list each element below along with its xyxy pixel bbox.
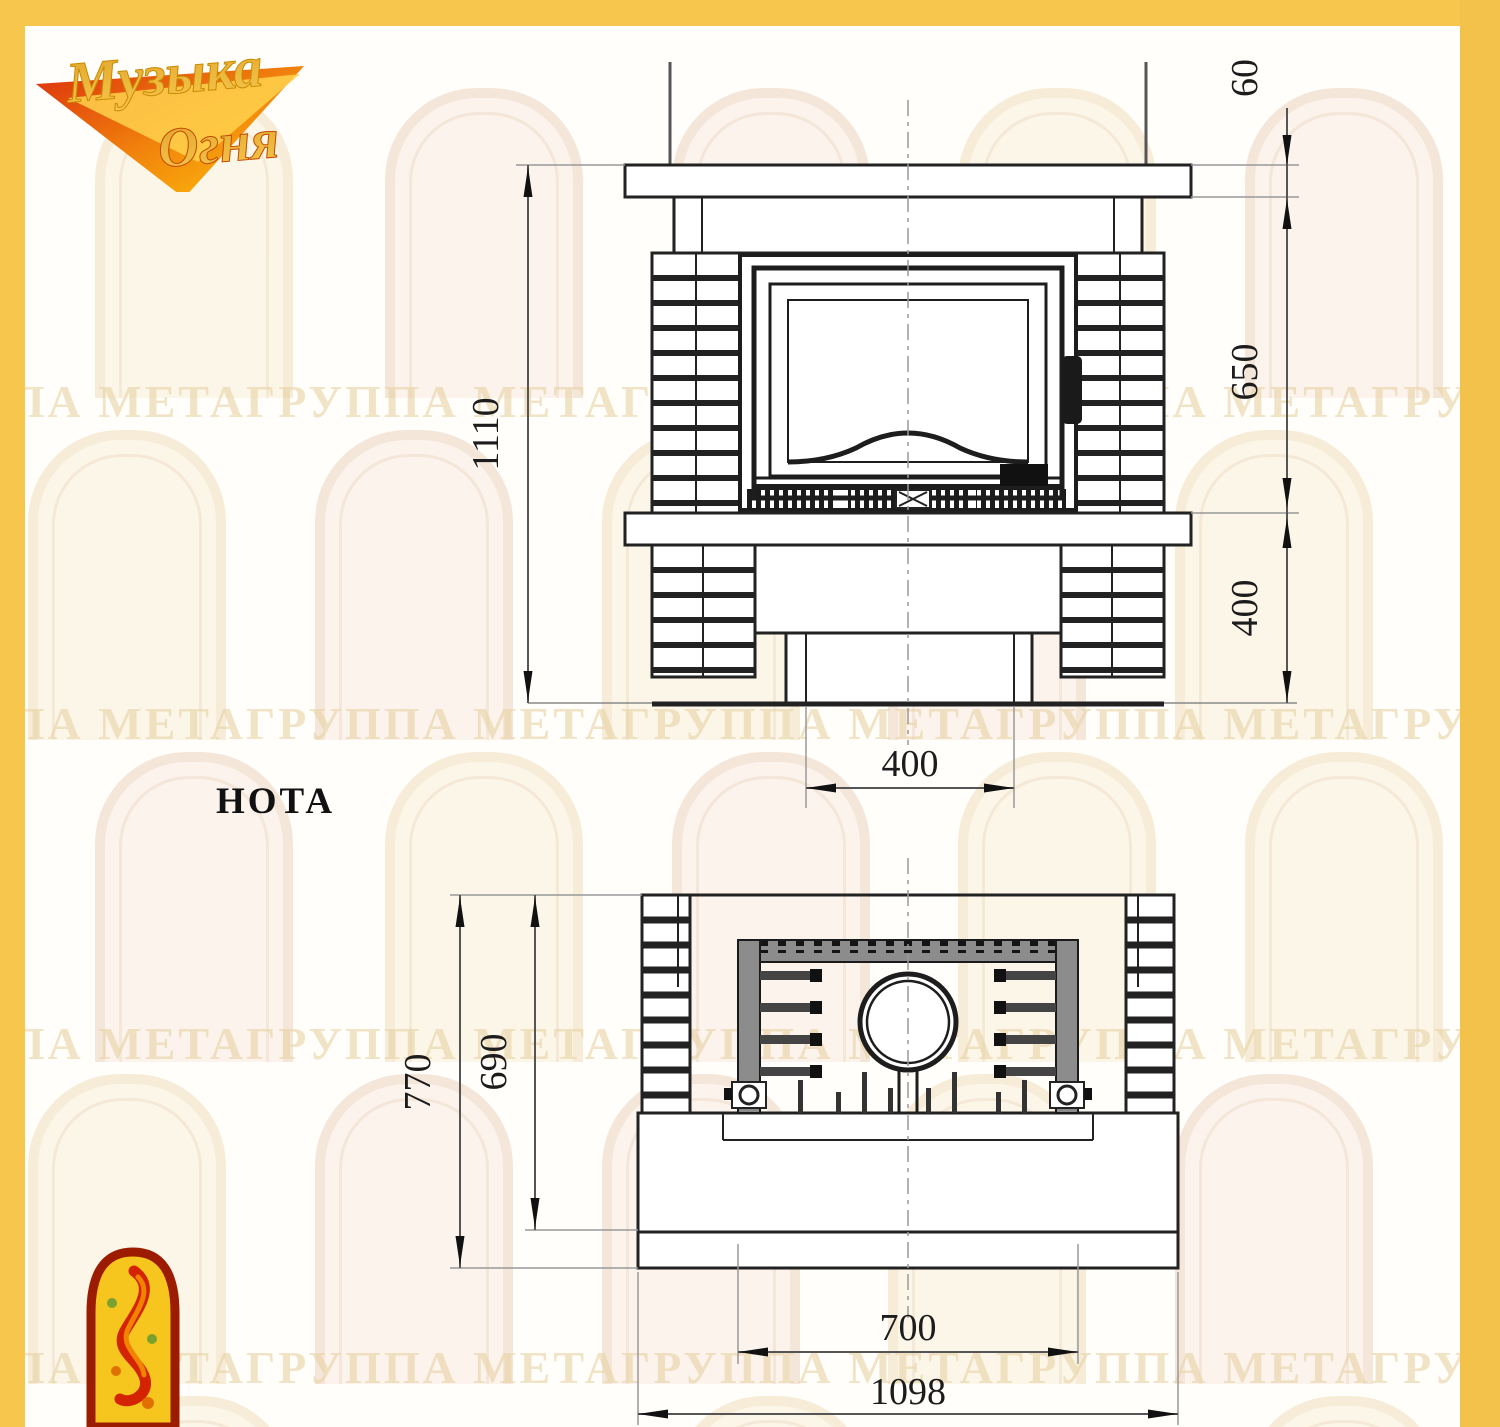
page: ППА МЕТАГРУППА МЕТАГРУППА МЕТАГРУППА МЕТ… [0, 0, 1500, 1427]
ash-lip [1000, 464, 1048, 486]
dim-opening-height: 650 [1224, 344, 1266, 401]
door-handle [1062, 356, 1082, 424]
plan-column-left [642, 895, 690, 1113]
dim-base-width: 1098 [870, 1371, 946, 1413]
firebox-insert [740, 255, 1082, 510]
corner-arch-logo [82, 1243, 184, 1427]
plan-column-right [1126, 895, 1174, 1113]
dim-pedestal-height: 400 [1224, 580, 1266, 637]
dim-mantel-thickness: 60 [1224, 59, 1266, 97]
fireplace-technical-drawing: 1110 60 650 400 400 [0, 0, 1500, 1427]
dim-hearth-width: 400 [882, 743, 939, 785]
dim-inner-depth: 690 [473, 1034, 515, 1091]
model-name-label: НОТА [216, 780, 335, 823]
dim-total-depth: 770 [397, 1054, 439, 1111]
brick-column-left [652, 253, 740, 513]
dim-firebox-width: 700 [880, 1307, 937, 1349]
brick-column-right [1076, 253, 1164, 513]
plan-view [638, 858, 1178, 1318]
front-view [528, 62, 1297, 745]
brand-logo: Музыка Огня [8, 12, 318, 192]
vent-grille [746, 489, 1066, 509]
dim-total-height: 1110 [465, 397, 507, 470]
logo-text-line2: Огня [155, 108, 281, 180]
pedestal-block-lower [786, 633, 1032, 703]
